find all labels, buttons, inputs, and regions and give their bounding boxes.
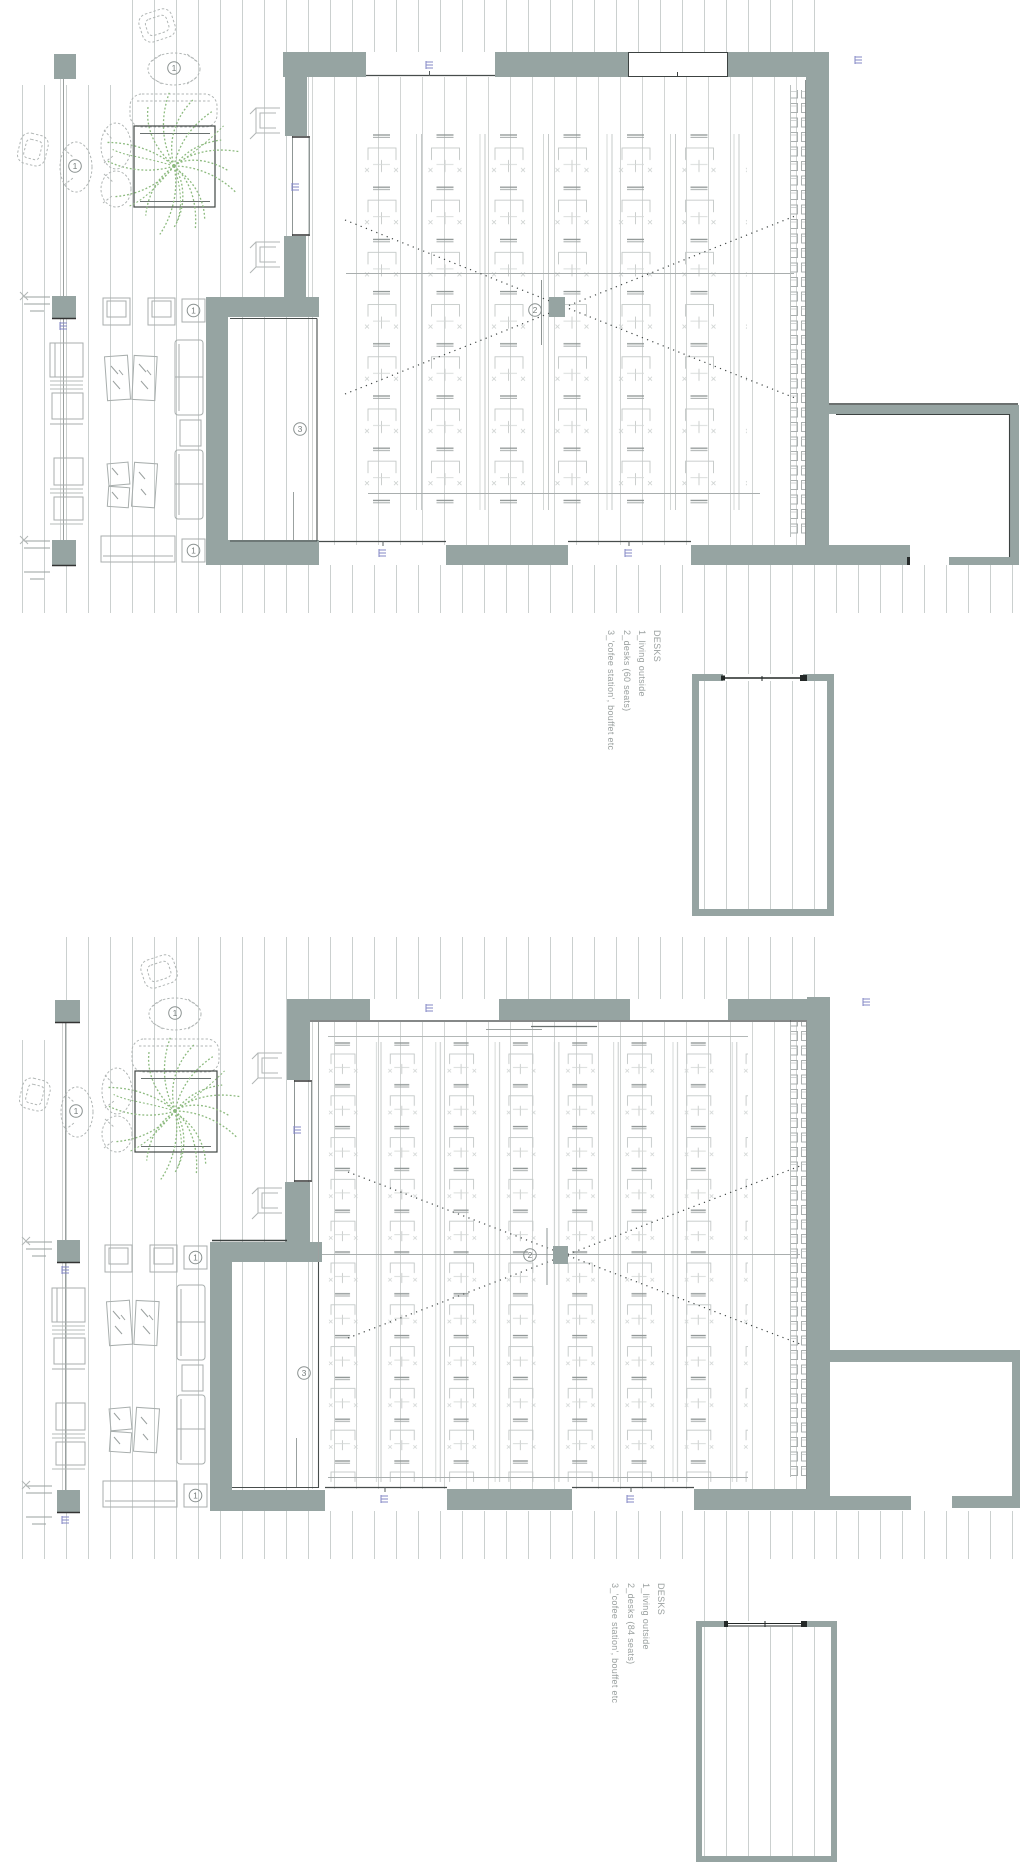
svg-text:1_living outside: 1_living outside bbox=[637, 630, 647, 697]
svg-text:3_'cofee station', bouffet etc: 3_'cofee station', bouffet etc bbox=[606, 630, 616, 751]
svg-text:DESKS: DESKS bbox=[652, 630, 662, 662]
svg-text:1_living outside: 1_living outside bbox=[641, 1583, 651, 1650]
svg-text:DESKS: DESKS bbox=[656, 1583, 666, 1615]
svg-text:2_desks (84 seats): 2_desks (84 seats) bbox=[626, 1583, 636, 1664]
svg-text:2_desks (60 seats): 2_desks (60 seats) bbox=[622, 630, 632, 711]
svg-text:3_'cofee station', bouffet etc: 3_'cofee station', bouffet etc bbox=[610, 1583, 620, 1704]
